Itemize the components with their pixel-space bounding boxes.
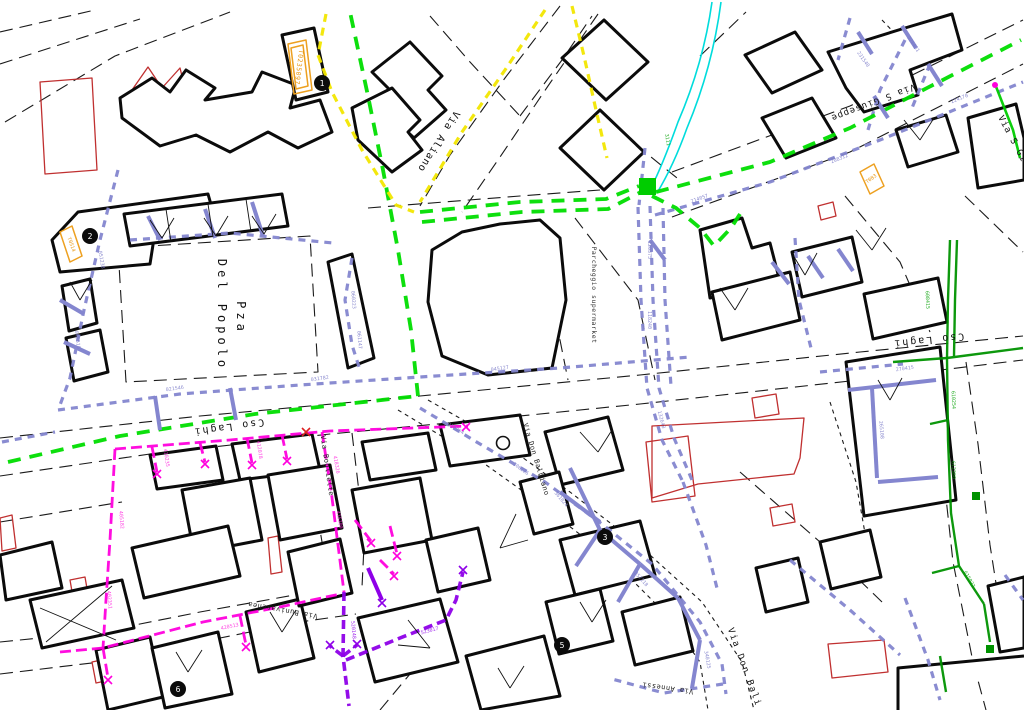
map-viewport: 1235602154603178204512712037511824013264… [0, 0, 1024, 710]
building-outline [426, 528, 490, 592]
cable-label: 615032 [962, 570, 976, 589]
building-outline [864, 278, 947, 339]
map-canvas: 1235602154603178204512712037511824013264… [0, 0, 1024, 710]
cable-label: 308126 [511, 462, 529, 477]
chamber-number: 2 [88, 232, 93, 241]
termination-cross [242, 643, 250, 651]
road-boundary-line [368, 190, 600, 208]
street-label: Via Don Bali [725, 627, 763, 708]
cable-label: 418326 [331, 455, 340, 474]
building-outline [440, 415, 530, 466]
cable-periwinkle-duct [58, 357, 690, 410]
node-square [639, 178, 656, 195]
building-outline [745, 32, 822, 93]
cable-darkgreen-net [984, 604, 990, 642]
building-outline [362, 433, 436, 480]
red-structure-outline [40, 78, 97, 174]
node-square [972, 492, 980, 500]
building-outline [358, 599, 458, 682]
red-structure-outline [752, 394, 779, 418]
building-outline [756, 558, 808, 612]
building-outline [466, 636, 560, 710]
cable-label: 405182 [117, 511, 125, 530]
cable-label: 610254 [950, 391, 957, 409]
building-outline [820, 530, 881, 589]
road-boundary-line [672, 20, 1023, 172]
cable-magenta-net [380, 560, 394, 574]
road-boundary-line [575, 218, 655, 380]
cable-label: 208312 [830, 153, 849, 165]
cable-violet-net [343, 592, 349, 706]
cable-label: 214057 [690, 193, 709, 205]
cable-magenta-net [240, 616, 246, 645]
building-outline [560, 110, 644, 190]
building-outline [896, 115, 958, 167]
cable-label: 031782 [310, 375, 329, 383]
node-square [986, 645, 994, 653]
service-drop [368, 568, 382, 600]
cable-periwinkle-duct [683, 482, 718, 592]
cable-label: 520148 [349, 621, 357, 640]
road-boundary-line [0, 10, 95, 32]
cable-label: 420513 [220, 622, 239, 632]
cable-label: 118240 [646, 311, 652, 329]
red-structure-outline [268, 536, 282, 574]
street-label: T083 [865, 173, 878, 185]
cable-green-trunk [422, 192, 641, 222]
termination-cross [393, 552, 401, 560]
road-boundary-line [0, 19, 140, 64]
red-structure-outline [770, 504, 795, 526]
cable-label: 120375 [646, 241, 652, 259]
cable-label: 021546 [165, 385, 184, 393]
building-outline [988, 577, 1024, 652]
building-outline [132, 526, 240, 598]
road-boundary-line [965, 196, 1023, 252]
cable-label: 612380 [950, 461, 957, 479]
red-structure-outline [828, 640, 888, 678]
chamber-number: 1 [320, 79, 325, 88]
cable-label: 608415 [924, 291, 931, 309]
street-label: Del Popolo [215, 259, 229, 371]
road-boundary-line [0, 502, 122, 522]
red-structure-outline [652, 418, 804, 498]
manhole-ring [497, 437, 510, 450]
building-outline [428, 220, 566, 375]
building-outline [152, 632, 232, 708]
connection-fan [856, 228, 886, 250]
cable-label: 340125 [702, 650, 711, 669]
building-outline [898, 656, 1024, 710]
cable-periwinkle-duct [655, 82, 1023, 215]
stream-line [657, 2, 721, 193]
street-label: Pza [234, 301, 248, 335]
stream-line [651, 2, 712, 188]
chamber-number: 5 [560, 641, 565, 650]
connection-fan [500, 514, 528, 548]
cable-label: 3111 [663, 133, 671, 146]
node-dot [992, 82, 998, 88]
building-outline [562, 20, 648, 100]
building-outline [150, 446, 223, 489]
chamber-number: 6 [176, 685, 181, 694]
service-drop [928, 64, 942, 86]
street-label: Parcheggio supermarket [590, 246, 598, 343]
chamber-number: 3 [603, 533, 608, 542]
building-outline [352, 478, 432, 553]
termination-cross [378, 599, 386, 607]
road-boundary-line [430, 16, 520, 116]
service-drop [155, 396, 160, 430]
service-drop [230, 388, 236, 420]
red-structure-outline [818, 202, 836, 220]
building-outline [0, 542, 62, 600]
building-outline [762, 98, 836, 158]
